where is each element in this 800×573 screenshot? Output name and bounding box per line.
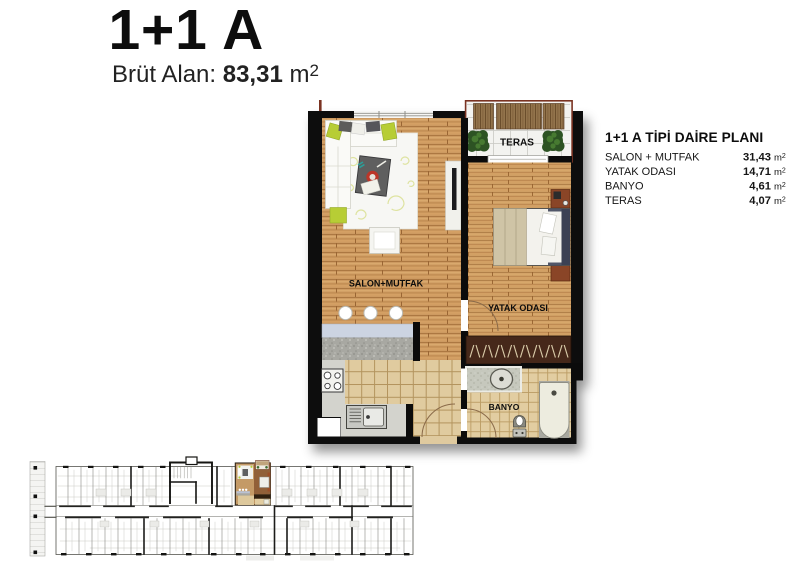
- svg-text:1+1 A TİPİ DAİRE PLANI: 1+1 A TİPİ DAİRE PLANI: [605, 130, 763, 145]
- svg-text:1+1 A: 1+1 A: [109, 0, 265, 62]
- svg-text:m2: m2: [774, 182, 786, 193]
- svg-text:4,61: 4,61: [749, 181, 771, 193]
- svg-text:Brüt Alan: 83,31 m2: Brüt Alan: 83,31 m2: [112, 61, 319, 88]
- svg-text:m2: m2: [774, 196, 786, 207]
- svg-text:m2: m2: [774, 167, 786, 178]
- svg-text:TERAS: TERAS: [605, 195, 642, 207]
- svg-text:14,71: 14,71: [743, 166, 771, 178]
- svg-text:SALON+MUTFAK: SALON+MUTFAK: [349, 279, 424, 289]
- svg-text:BANYO: BANYO: [489, 402, 520, 412]
- svg-text:4,07: 4,07: [749, 195, 771, 207]
- svg-text:m2: m2: [774, 153, 786, 164]
- svg-text:YATAK ODASI: YATAK ODASI: [605, 166, 676, 178]
- svg-text:31,43: 31,43: [743, 152, 771, 164]
- svg-text:BANYO: BANYO: [605, 181, 644, 193]
- svg-text:TERAS: TERAS: [500, 138, 534, 149]
- svg-text:YATAK ODASI: YATAK ODASI: [488, 303, 548, 313]
- svg-text:SALON + MUTFAK: SALON + MUTFAK: [605, 152, 700, 164]
